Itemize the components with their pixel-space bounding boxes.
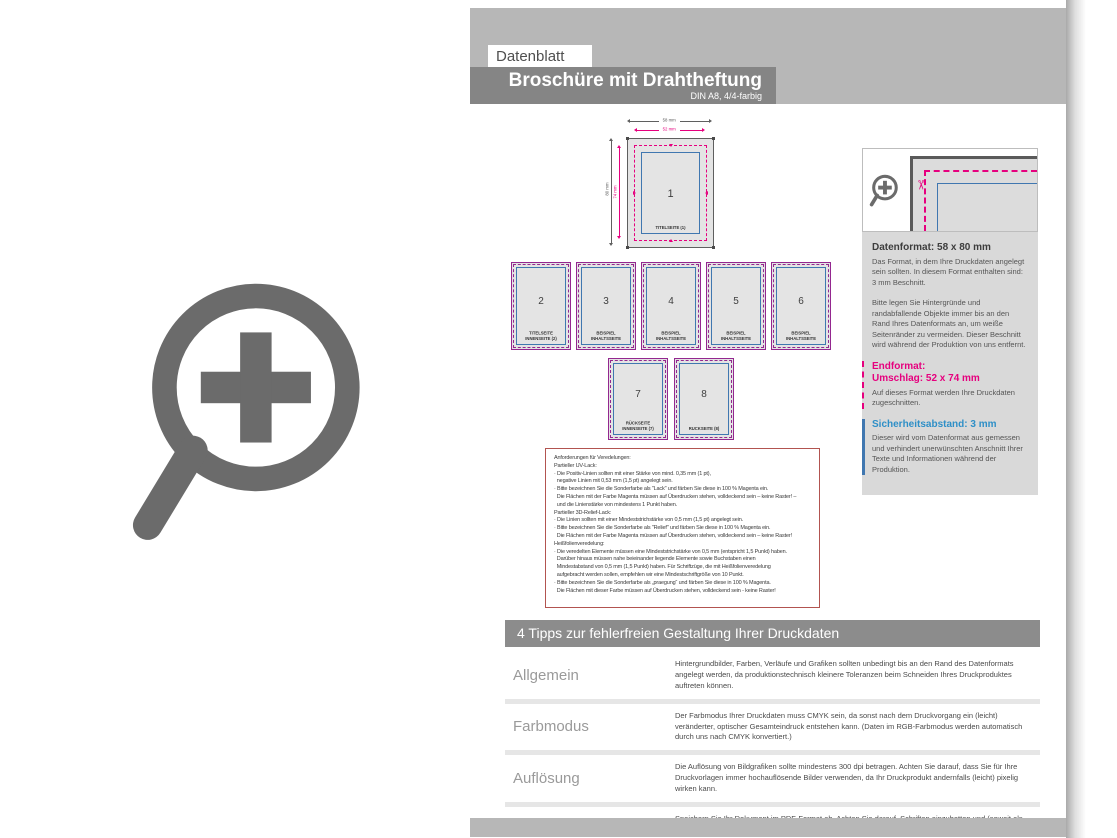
dimension-label: 52 mm [662,128,677,132]
zoom-plus-icon [869,174,899,208]
requirement-line: Die Flächen mit dieser Farbe müssen auf … [554,588,811,596]
tip-text: Der Farbmodus Ihrer Druckdaten muss CMYK… [665,704,1040,751]
page-label: BEISPIEL INHALTSSEITE [716,332,757,343]
requirement-line: Die Flächen mit der Farbe Magenta müssen… [554,533,811,541]
page-subtitle: DIN A8, 4/4-farbig [470,91,762,102]
dimension-width-outer: 58 mm [627,118,712,124]
requirement-line: · Die Linien sollten mit einer Mindestst… [554,517,811,525]
page-number: 6 [772,296,830,307]
page-label: RÜCKSEITE INNENSEITE (7) [618,422,659,433]
requirement-line: Heißfolienveredelung: [554,541,811,549]
endformat-text: Auf dieses Format werden Ihre Druckdaten… [872,388,1028,409]
dimension-width-inner: 52 mm [634,127,705,133]
bleed-text: Bitte legen Sie Hintergründe und randabf… [872,298,1028,351]
page-number: 3 [577,296,635,307]
page-box-2: 2 TITELSEITE INNENSEITE (2) [511,262,571,350]
datenblatt-tab: Datenblatt [488,45,592,68]
page-number: 1 [628,188,713,200]
zoom-plus-icon [130,276,366,554]
page-box-1: 1 TITELSEITE (1) [627,138,714,248]
page-number: 2 [512,296,570,307]
page-label: RÜCKSEITE (8) [684,427,725,432]
requirement-line: und die Linienstärke von mindestens 1 Pu… [554,502,811,510]
page-number: 4 [642,296,700,307]
requirement-line: Mindestabstand von 0,5 mm (1,5 Punkt) ha… [554,564,811,572]
endformat-title: Endformat: [872,361,1028,374]
page-label: BEISPIEL INHALTSSEITE [586,332,627,343]
requirement-line: Darüber hinaus müssen nahe beieinander l… [554,556,811,564]
page-edge-shadow [1066,0,1086,838]
datasheet-screenshot: Datenblatt Broschüre mit Drahtheftung DI… [0,0,1117,838]
page-label: BEISPIEL INHALTSSEITE [651,332,692,343]
tip-label: Farbmodus [505,704,665,751]
datenformat-title: Datenformat: 58 x 80 mm [872,242,1028,255]
safety-line [937,183,1037,184]
tip-row: Auflösung Die Auflösung von Bildgrafiken… [505,750,1040,802]
tips-header: 4 Tipps zur fehlerfreien Gestaltung Ihre… [505,620,1040,647]
endformat-subtitle: Umschlag: 52 x 74 mm [872,373,1028,386]
requirement-line: · Bitte bezeichnen Sie die Sonderfarbe a… [554,525,811,533]
datasheet-page: Datenblatt Broschüre mit Drahtheftung DI… [470,0,1090,838]
requirement-line: aufgebracht werden sollen, empfehlen wir… [554,572,811,580]
requirement-line: Partieller 3D-Relief-Lack: [554,510,811,518]
requirement-line: · Bitte bezeichnen Sie die Sonderfarbe a… [554,580,811,588]
tip-row: Farbmodus Der Farbmodus Ihrer Druckdaten… [505,699,1040,751]
cut-line [924,170,1037,172]
page-box-4: 4 BEISPIEL INHALTSSEITE [641,262,701,350]
safety-block: Sicherheitsabstand: 3 mm Dieser wird vom… [862,419,1028,476]
safety-title: Sicherheitsabstand: 3 mm [872,419,1028,432]
requirement-line: · Bitte bezeichnen Sie die Sonderfarbe a… [554,486,811,494]
page-label: BEISPIEL INHALTSSEITE [781,332,822,343]
dimension-label: 74 mm [614,183,618,200]
page-corner-detail: ✂ [910,156,1037,231]
footer-bar [470,818,1066,837]
page-number: 5 [707,296,765,307]
page-box-7: 7 RÜCKSEITE INNENSEITE (7) [608,358,668,440]
page-title: Broschüre mit Drahtheftung [470,70,762,91]
tip-label: Auflösung [505,755,665,802]
scissors-icon: ✂ [912,180,928,191]
requirement-line: negative Linien mit 0,53 mm (1,5 pt) ang… [554,478,811,486]
page-number: 8 [675,389,733,400]
endformat-block: Endformat: Umschlag: 52 x 74 mm Auf dies… [862,361,1028,409]
requirement-line: · Die veredelten Elemente müssen eine Mi… [554,549,811,557]
datenformat-text: Das Format, in dem Ihre Druckdaten angel… [872,257,1028,289]
finishing-requirements-box: Anforderungen für Veredelungen:Partielle… [545,448,820,608]
requirement-line: Die Flächen mit der Farbe Magenta müssen… [554,494,811,502]
dimension-label: 80 mm [606,180,610,197]
tip-text: Die Auflösung von Bildgrafiken sollte mi… [665,755,1040,802]
safety-line [937,183,938,231]
tip-label: Allgemein [505,652,665,699]
dimension-label: 58 mm [662,119,677,123]
requirement-line: Anforderungen für Veredelungen: [554,455,811,463]
page-box-6: 6 BEISPIEL INHALTSSEITE [771,262,831,350]
page-number: 7 [609,389,667,400]
requirement-line: Partieller UV-Lack: [554,463,811,471]
tip-text: Hintergrundbilder, Farben, Verläufe und … [665,652,1040,699]
safety-text: Dieser wird vom Datenformat aus gemessen… [872,433,1028,475]
title-bar: Broschüre mit Drahtheftung DIN A8, 4/4-f… [470,67,776,104]
format-info-panel: Datenformat: 58 x 80 mm Das Format, in d… [862,232,1038,495]
requirement-line: · Die Positiv-Linien sollten mit einer S… [554,471,811,479]
bleed-zoom-illustration: ✂ [862,148,1038,232]
page-box-5: 5 BEISPIEL INHALTSSEITE [706,262,766,350]
tip-row: Allgemein Hintergrundbilder, Farben, Ver… [505,652,1040,699]
page-box-3: 3 BEISPIEL INHALTSSEITE [576,262,636,350]
tips-table: Allgemein Hintergrundbilder, Farben, Ver… [505,652,1040,838]
page-label: TITELSEITE (1) [641,226,701,231]
page-box-8: 8 RÜCKSEITE (8) [674,358,734,440]
page-label: TITELSEITE INNENSEITE (2) [521,332,562,343]
